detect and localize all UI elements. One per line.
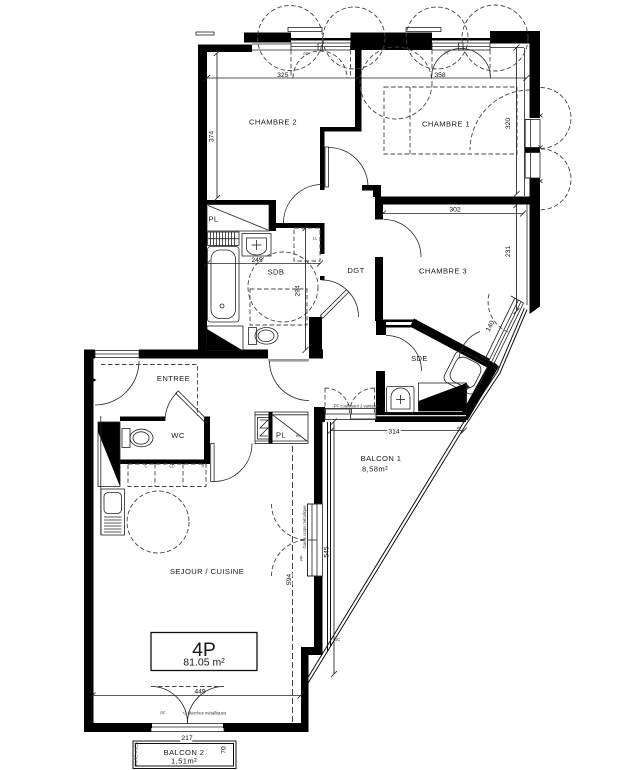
- svg-text:CHAMBRE 2: CHAMBRE 2: [249, 118, 297, 127]
- svg-text:320: 320: [505, 118, 512, 130]
- svg-text:SEJOUR / CUISINE: SEJOUR / CUISINE: [170, 567, 244, 576]
- svg-text:C: C: [144, 464, 147, 469]
- svg-text:PF: PF: [303, 52, 309, 57]
- svg-text:1,51m²: 1,51m²: [171, 757, 197, 766]
- svg-text:GC: GC: [334, 637, 340, 642]
- svg-text:81.05 m²: 81.05 m²: [183, 657, 225, 669]
- svg-text:PF coulissant 2 vantaux: PF coulissant 2 vantaux: [334, 404, 379, 409]
- svg-text:PF: PF: [160, 711, 166, 716]
- svg-text:PF: PF: [444, 51, 450, 56]
- svg-text:70: 70: [221, 746, 228, 754]
- svg-text:ec: ec: [296, 433, 300, 438]
- svg-text:449: 449: [194, 689, 206, 696]
- svg-text:358: 358: [434, 72, 446, 79]
- svg-text:CHAMBRE 1: CHAMBRE 1: [422, 120, 470, 129]
- svg-text:231: 231: [505, 246, 512, 258]
- svg-text:+2 Marches métalliques: +2 Marches métalliques: [182, 711, 226, 716]
- svg-text:BALCON 1: BALCON 1: [361, 454, 402, 463]
- svg-text:R: R: [201, 464, 204, 469]
- svg-text:8,58m²: 8,58m²: [362, 465, 388, 474]
- svg-text:SDE: SDE: [411, 354, 428, 363]
- svg-text:314: 314: [388, 429, 400, 436]
- svg-text:LC: LC: [169, 464, 174, 469]
- svg-text:DGT: DGT: [347, 266, 364, 275]
- svg-text:CHAMBRE 3: CHAMBRE 3: [419, 267, 467, 276]
- svg-text:WC: WC: [171, 431, 185, 440]
- svg-text:PARE-VUES: PARE-VUES: [134, 742, 139, 766]
- svg-text:374: 374: [209, 131, 216, 143]
- svg-text:ENTREE: ENTREE: [157, 374, 190, 383]
- svg-text:594: 594: [286, 574, 293, 586]
- svg-text:PL: PL: [208, 215, 218, 224]
- svg-text:245: 245: [251, 257, 263, 264]
- svg-text:PL: PL: [276, 431, 286, 440]
- svg-text:325: 325: [277, 72, 289, 79]
- svg-text:SDB: SDB: [268, 268, 285, 277]
- svg-text:294: 294: [295, 285, 302, 297]
- svg-text:545: 545: [324, 546, 331, 558]
- svg-text:ec: ec: [457, 425, 461, 430]
- svg-text:PF: PF: [299, 555, 304, 561]
- svg-text:302: 302: [449, 207, 461, 214]
- svg-text:Garde corps métallique: Garde corps métallique: [302, 505, 307, 549]
- svg-text:LL: LL: [313, 236, 318, 241]
- svg-text:217: 217: [181, 735, 193, 742]
